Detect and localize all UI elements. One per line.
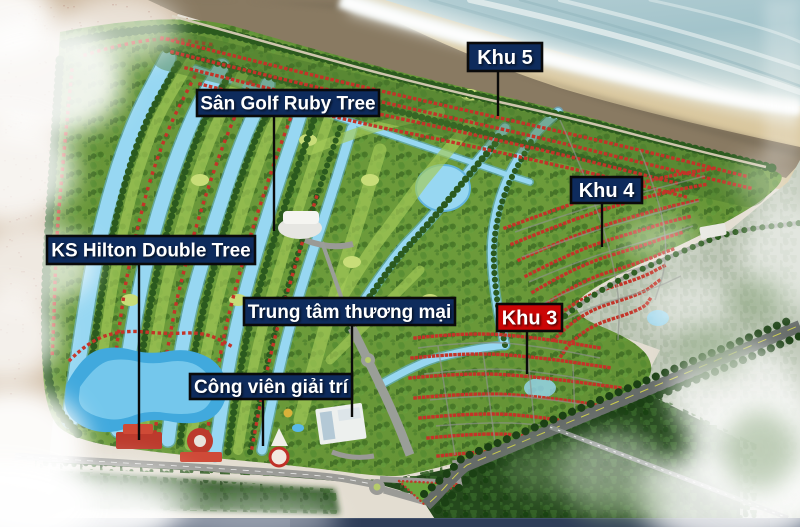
svg-text:KS Hilton Double Tree: KS Hilton Double Tree (51, 241, 251, 262)
svg-text:Sân Golf Ruby Tree: Sân Golf Ruby Tree (200, 94, 375, 115)
svg-text:Trung tâm thương mại: Trung tâm thương mại (248, 302, 452, 323)
svg-text:Khu 3: Khu 3 (502, 308, 558, 330)
svg-text:Công viên giải trí: Công viên giải trí (194, 377, 349, 398)
svg-text:Khu 4: Khu 4 (579, 180, 635, 202)
svg-text:Khu 5: Khu 5 (477, 47, 533, 69)
